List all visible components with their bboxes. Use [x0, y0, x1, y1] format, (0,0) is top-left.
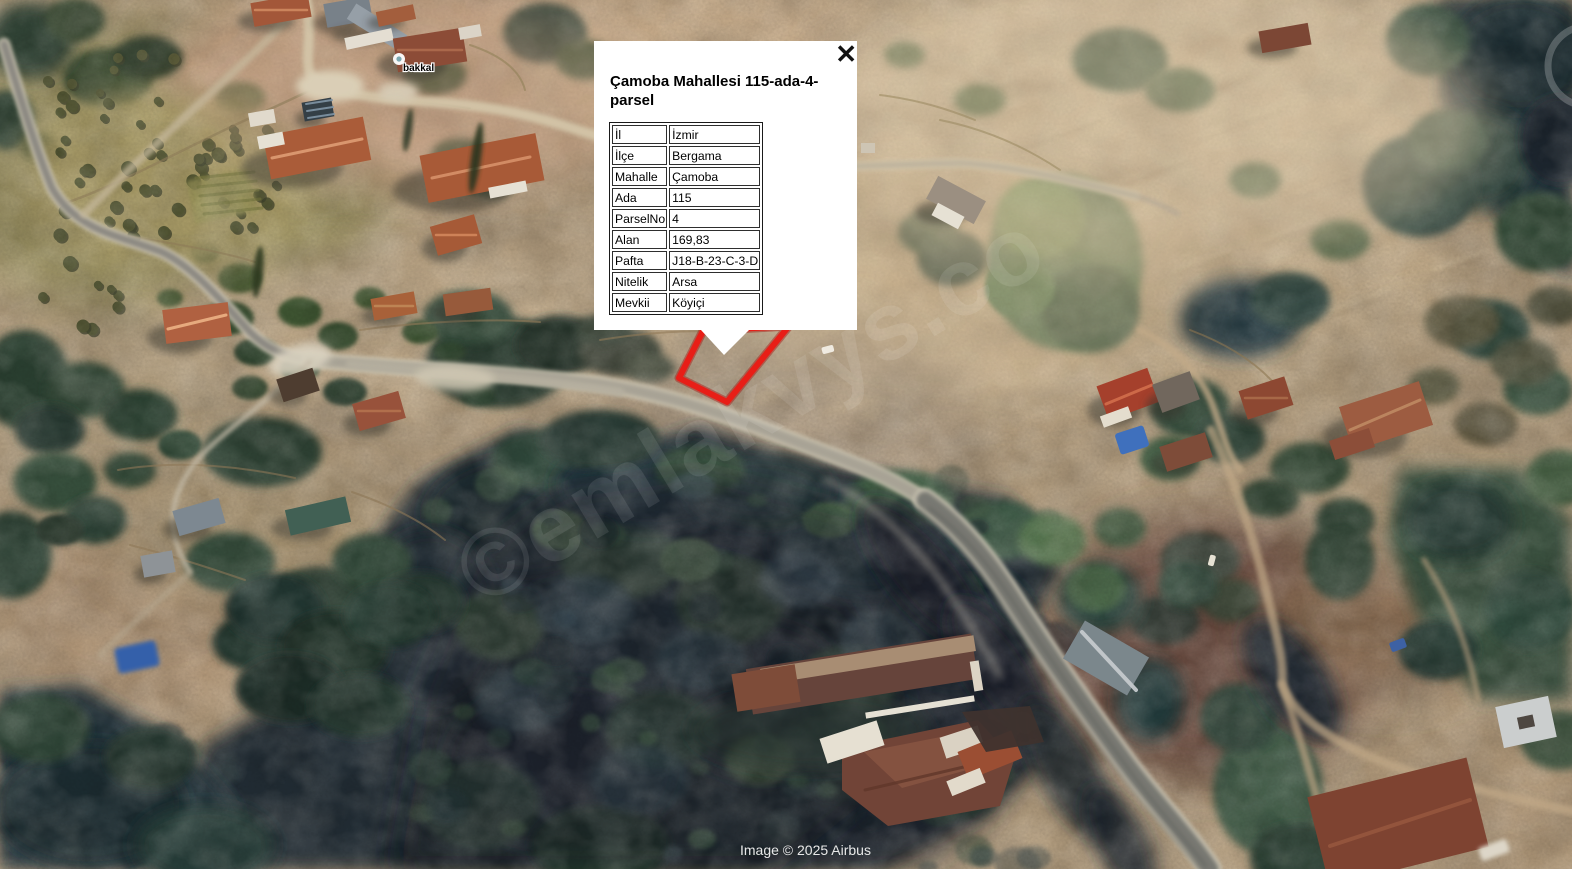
svg-text:bakkal: bakkal [403, 63, 434, 74]
svg-text:Image © 2025 Airbus: Image © 2025 Airbus [740, 842, 871, 858]
